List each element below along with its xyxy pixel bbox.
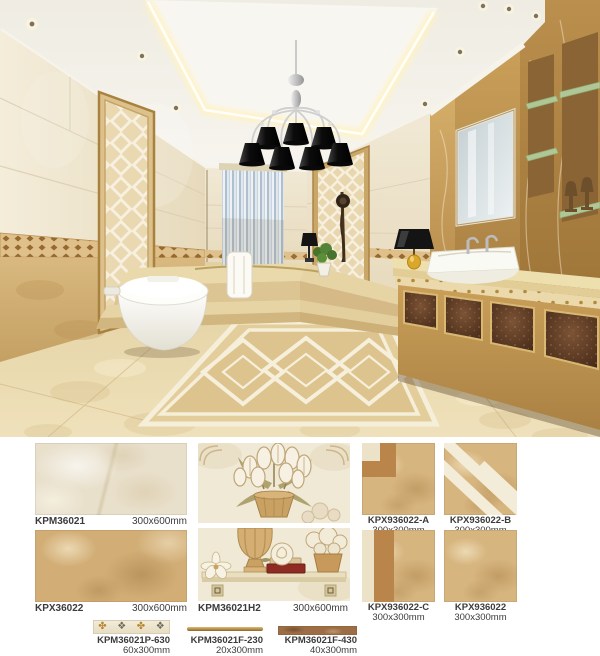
vase-mural-art xyxy=(198,528,350,601)
damask-motif-icon: ✤ xyxy=(98,622,106,632)
tile-size: 300x600mm xyxy=(132,516,187,527)
tile-size: 300x600mm xyxy=(293,603,348,614)
tile-label: KPX936022 300x300mm xyxy=(434,603,527,623)
tile-code: KPM36021H2 xyxy=(198,603,261,614)
tile-label: KPX936022-C 300x300mm xyxy=(352,603,445,623)
border-label: KPM36021F-430 40x300mm xyxy=(278,636,357,655)
border-swatch-kpm36021p-630: ✤ ❖ ✤ ❖ xyxy=(93,620,170,634)
tile-size: 40x300mm xyxy=(278,646,357,656)
tile-swatch-kpx936022 xyxy=(444,530,517,602)
small-table-lamp xyxy=(301,233,318,246)
tile-swatch-kpm36021 xyxy=(35,443,187,515)
tile-size: 300x300mm xyxy=(434,613,527,623)
tile-size: 60x300mm xyxy=(93,646,170,656)
tile-label-row: KPX36022 300x600mm xyxy=(35,603,187,614)
tile-catalog-page: KPM36021 300x600mm KPX36022 300x600mm xyxy=(0,0,600,656)
tile-code: KPX36022 xyxy=(35,603,83,614)
border-swatch-kpm36021f-430 xyxy=(278,626,357,635)
damask-motif-icon: ✤ xyxy=(137,622,145,632)
wall-niche-shelves xyxy=(526,32,600,222)
toilet-lid-hinge xyxy=(147,276,179,282)
back-wall xyxy=(205,163,307,268)
border-label: KPM36021F-230 20x300mm xyxy=(187,636,263,655)
tile-swatch-kpx36022 xyxy=(35,530,187,602)
damask-motif-icon: ❖ xyxy=(156,622,165,632)
tile-swatch-kpx936022-a xyxy=(362,443,435,515)
tile-size: 300x600mm xyxy=(132,603,187,614)
window-curtain xyxy=(219,163,287,268)
vanity-mirror xyxy=(457,110,514,225)
border-label: KPM36021P-630 60x300mm xyxy=(93,636,170,655)
edge-strip-light xyxy=(362,530,374,602)
tile-label-row: KPM36021H2 300x600mm xyxy=(198,603,348,614)
tile-swatch-kpx936022-b xyxy=(444,443,517,515)
tile-label-row: KPM36021 300x600mm xyxy=(35,516,187,527)
tile-size: 20x300mm xyxy=(187,646,263,656)
tile-code: KPM36021 xyxy=(35,516,85,527)
tile-size: 300x300mm xyxy=(352,613,445,623)
tulip-mural-art xyxy=(198,443,350,523)
damask-motif-icon: ❖ xyxy=(117,622,126,632)
mural-swatch-vase xyxy=(198,528,350,601)
mural-swatch-tulips xyxy=(198,443,350,523)
towel xyxy=(227,252,252,298)
border-swatch-kpm36021f-230 xyxy=(187,627,263,631)
bathroom-render-scene xyxy=(0,0,600,437)
edge-strip-dark xyxy=(374,530,394,602)
corner-motif-light xyxy=(362,443,380,461)
bathroom-scene-svg xyxy=(0,0,600,437)
tile-swatch-kpx936022-c xyxy=(362,530,435,602)
vessel-sink xyxy=(427,247,519,284)
toilet-control xyxy=(104,287,120,295)
